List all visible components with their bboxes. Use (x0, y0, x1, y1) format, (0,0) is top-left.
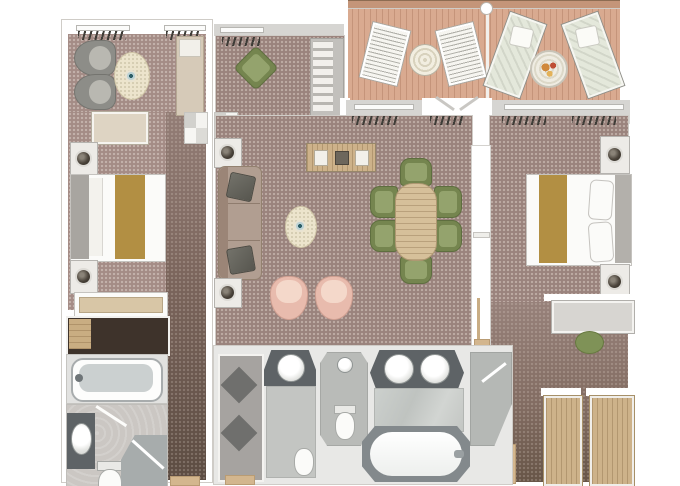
lamp-icon (77, 152, 90, 165)
shelves (313, 41, 333, 111)
tub-chair-seat (321, 280, 346, 303)
window (220, 27, 264, 33)
pillow (588, 179, 615, 221)
stool (575, 331, 604, 354)
step-mark (435, 96, 455, 111)
lamp-icon (608, 148, 621, 161)
wardrobe (590, 396, 634, 486)
divider-post-icon (480, 2, 493, 15)
dining-chair (370, 220, 398, 252)
lamp-icon (77, 270, 90, 283)
armchair (74, 74, 116, 110)
lamp-icon (221, 286, 234, 299)
master-bath-floor (374, 388, 464, 432)
cabinet (214, 138, 242, 168)
column (184, 112, 208, 144)
master-bathroom-block (214, 346, 512, 484)
curtain-icon (222, 37, 260, 46)
curtain-icon (572, 116, 616, 125)
lounger-pillow (575, 25, 601, 49)
shower-room-toilet (294, 448, 314, 476)
dining-chair-seat (405, 261, 427, 279)
cushion-seam (228, 203, 260, 204)
shelving-unit (310, 38, 344, 116)
washbasin (420, 354, 450, 384)
wall-stub (541, 388, 581, 396)
guest-bathroom-floor (66, 404, 168, 486)
pillow (588, 221, 615, 263)
curtain-icon (430, 116, 464, 125)
floor-plan (0, 0, 680, 486)
shower-door-icon (481, 362, 506, 383)
lounger-pillow (509, 25, 535, 49)
armchair (74, 40, 116, 76)
entry-mat (170, 476, 200, 486)
washbasin (71, 423, 92, 455)
entry-mat (225, 475, 255, 485)
guest-cabin (62, 20, 212, 486)
dining-chair-seat (439, 191, 457, 213)
sofa (218, 166, 262, 280)
corner-shower (121, 435, 167, 486)
dining-chair (400, 158, 432, 186)
oval-dining-table (395, 183, 437, 261)
desk-wall (544, 294, 630, 301)
bed-runner (115, 175, 145, 259)
main-suite (214, 0, 634, 486)
dining-chair (434, 186, 462, 218)
armchair-seat (89, 46, 111, 69)
nightstand (70, 260, 98, 294)
closet-wood-floor (69, 319, 91, 349)
console-sideboard (306, 143, 376, 172)
refreshment-table (530, 50, 568, 88)
dark-wardrobe-closet (66, 316, 170, 356)
toilet (335, 412, 355, 440)
veranda-divider (486, 9, 489, 102)
nightstand (70, 142, 98, 176)
diamond-inlay (221, 367, 258, 404)
ottoman-bench (92, 112, 148, 144)
toilet-room-floor (320, 352, 368, 446)
diamond-inlay (221, 415, 258, 452)
dining-chair-seat (375, 225, 393, 247)
toilet (98, 469, 122, 486)
toilet-room-basin (337, 357, 353, 373)
tub-chair-seat (276, 280, 301, 303)
wicker-table (409, 44, 441, 76)
master-double-bed (526, 174, 632, 266)
decor-item (355, 150, 369, 166)
bed-runner (539, 175, 567, 263)
cocktail-table-icon (125, 70, 137, 82)
chaise-bench (176, 36, 204, 116)
dresser-top (79, 297, 163, 313)
decor-item (314, 150, 328, 166)
veranda-right-wall (620, 0, 632, 103)
bathtub-basin (79, 364, 153, 392)
dining-chair-seat (439, 225, 457, 247)
faucet-icon (454, 450, 464, 458)
throw-pillow (226, 172, 257, 203)
washbasin (384, 354, 414, 384)
walk-in-closet-floor (218, 354, 264, 482)
door-leaf (477, 298, 480, 340)
wall-stub (586, 388, 630, 396)
window (354, 104, 414, 110)
large-bathtub (362, 426, 470, 482)
dining-chair-seat (375, 191, 393, 213)
curtain-icon (502, 116, 546, 125)
cocktail-table-icon (294, 220, 306, 232)
headboard (615, 175, 631, 263)
bed-pillow (89, 178, 103, 256)
door-swing-icon (95, 405, 127, 427)
door-leaf (473, 232, 490, 238)
curtain-icon (78, 31, 126, 40)
step-mark (459, 96, 479, 111)
sofa-back (219, 167, 228, 279)
guest-tub-room (66, 354, 168, 404)
window (504, 104, 624, 110)
desk (552, 301, 634, 333)
dining-chair-seat (405, 163, 427, 181)
decor-item (335, 151, 349, 165)
bathtub-basin (370, 432, 462, 476)
throw-pillow (226, 245, 256, 275)
cabinet (214, 278, 242, 308)
faucet-icon (75, 374, 83, 382)
lamp-icon (608, 275, 621, 288)
dresser (74, 292, 168, 318)
headboard (71, 175, 89, 259)
curtain-icon (352, 116, 398, 125)
guest-double-bed (70, 174, 166, 262)
armchair-seat (89, 80, 111, 103)
nightstand (600, 136, 630, 174)
dining-chair (370, 186, 398, 218)
shower-enclosure (470, 352, 512, 446)
lounge-chair-seat (240, 52, 271, 83)
dining-chair (434, 220, 462, 252)
washbasin (277, 354, 305, 382)
chaise-pillow (179, 39, 201, 57)
lamp-icon (221, 146, 234, 159)
wardrobe (544, 396, 582, 486)
cushion-seam (228, 240, 260, 241)
guest-corridor-floor (166, 112, 206, 480)
entry-foyer (472, 146, 490, 346)
